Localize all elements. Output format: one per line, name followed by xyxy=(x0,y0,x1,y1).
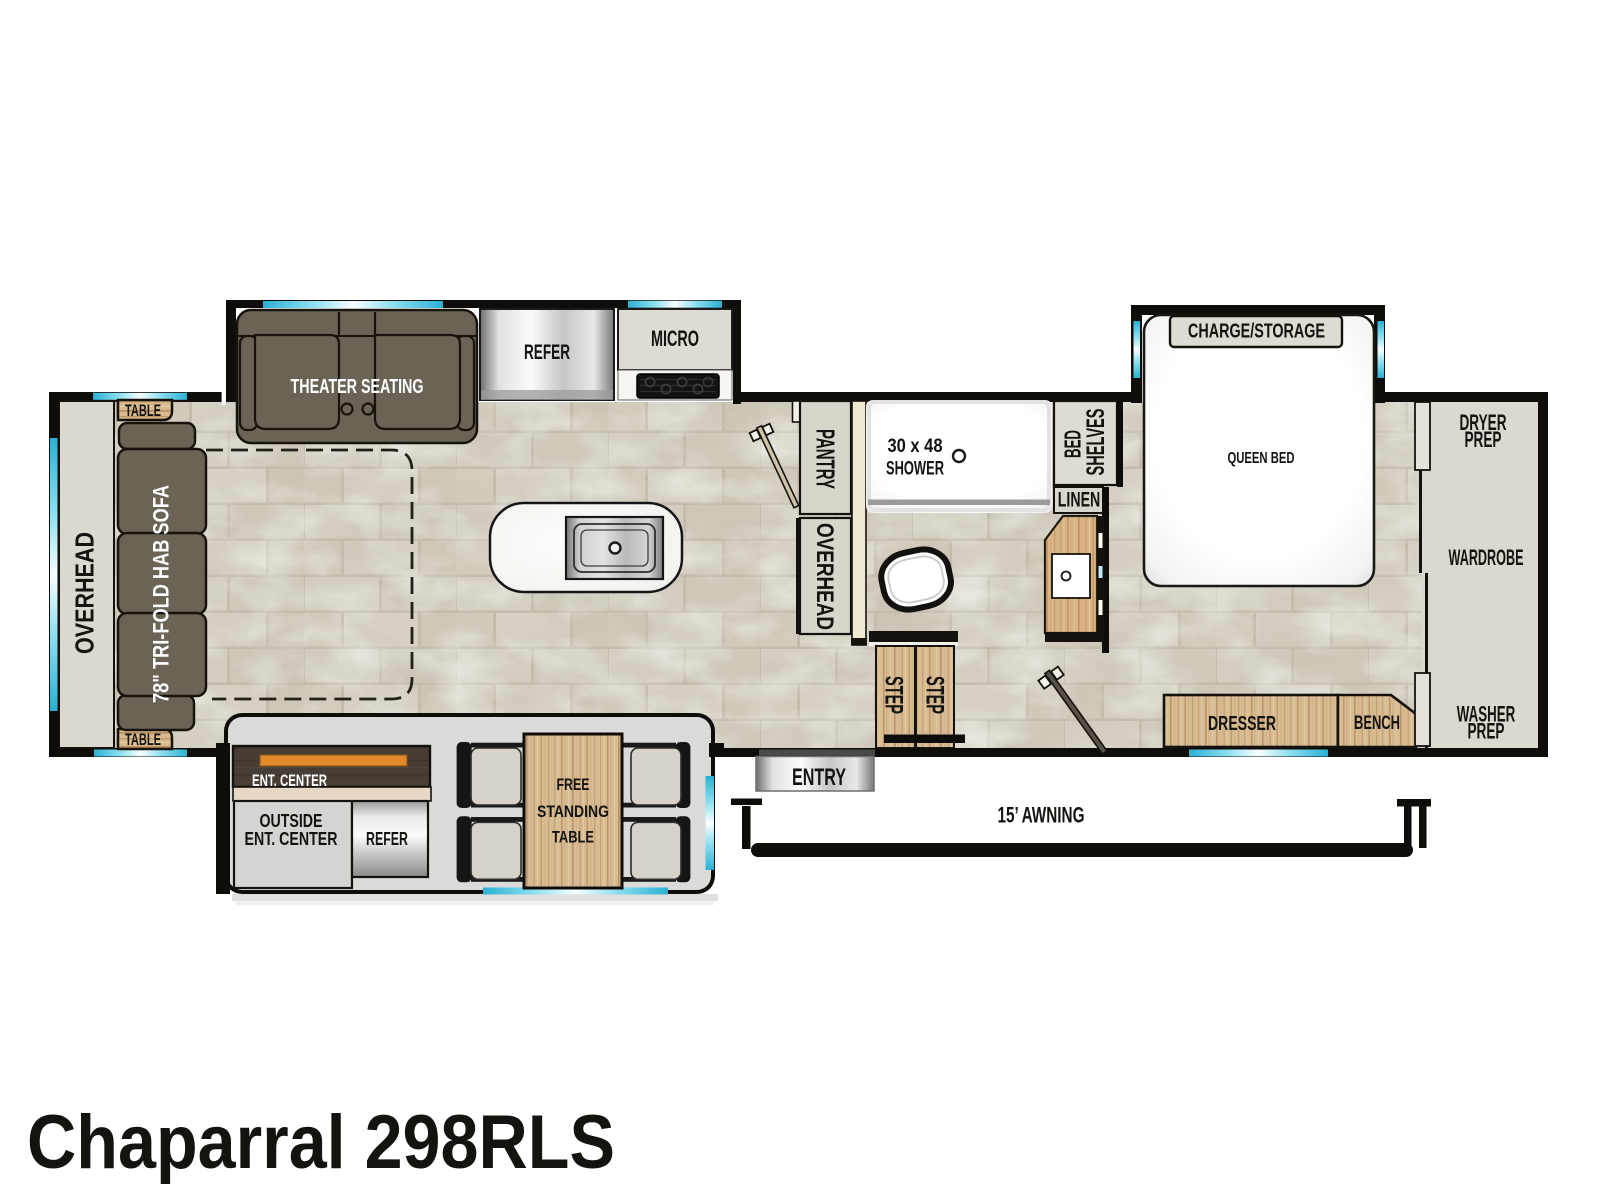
svg-text:TABLE: TABLE xyxy=(552,828,594,847)
svg-text:THEATER SEATING: THEATER SEATING xyxy=(291,375,424,398)
svg-text:REFER: REFER xyxy=(524,340,570,364)
svg-text:PREP: PREP xyxy=(1465,427,1502,452)
svg-text:FREE: FREE xyxy=(557,775,590,794)
svg-text:SHOWER: SHOWER xyxy=(886,458,944,480)
svg-text:TABLE: TABLE xyxy=(125,730,161,749)
svg-text:MICRO: MICRO xyxy=(651,326,699,351)
svg-text:DRESSER: DRESSER xyxy=(1208,712,1276,735)
svg-text:REFER: REFER xyxy=(366,828,408,849)
svg-text:BENCH: BENCH xyxy=(1354,712,1400,734)
svg-text:QUEEN BED: QUEEN BED xyxy=(1228,450,1295,467)
svg-text:Chaparral 298RLS: Chaparral 298RLS xyxy=(27,1100,615,1185)
svg-text:SHELVES: SHELVES xyxy=(1082,409,1110,476)
svg-text:PANTRY: PANTRY xyxy=(811,429,841,489)
svg-text:15’ AWNING: 15’ AWNING xyxy=(998,803,1085,828)
svg-text:WARDROBE: WARDROBE xyxy=(1449,545,1524,570)
svg-text:OVERHEAD: OVERHEAD xyxy=(811,523,838,630)
svg-text:CHARGE/STORAGE: CHARGE/STORAGE xyxy=(1188,321,1325,343)
svg-text:ENTRY: ENTRY xyxy=(792,764,846,791)
svg-text:30 x 48: 30 x 48 xyxy=(888,435,943,457)
svg-text:STEP: STEP xyxy=(880,676,908,714)
svg-text:OVERHEAD: OVERHEAD xyxy=(72,532,100,654)
svg-text:PREP: PREP xyxy=(1468,719,1505,744)
svg-text:TABLE: TABLE xyxy=(125,401,161,420)
svg-text:STEP: STEP xyxy=(921,676,949,714)
svg-text:LINEN: LINEN xyxy=(1058,489,1101,512)
svg-text:STANDING: STANDING xyxy=(537,802,609,821)
svg-text:78" TRI-FOLD HAB SOFA: 78" TRI-FOLD HAB SOFA xyxy=(149,485,174,703)
svg-text:ENT. CENTER: ENT. CENTER xyxy=(245,828,338,849)
